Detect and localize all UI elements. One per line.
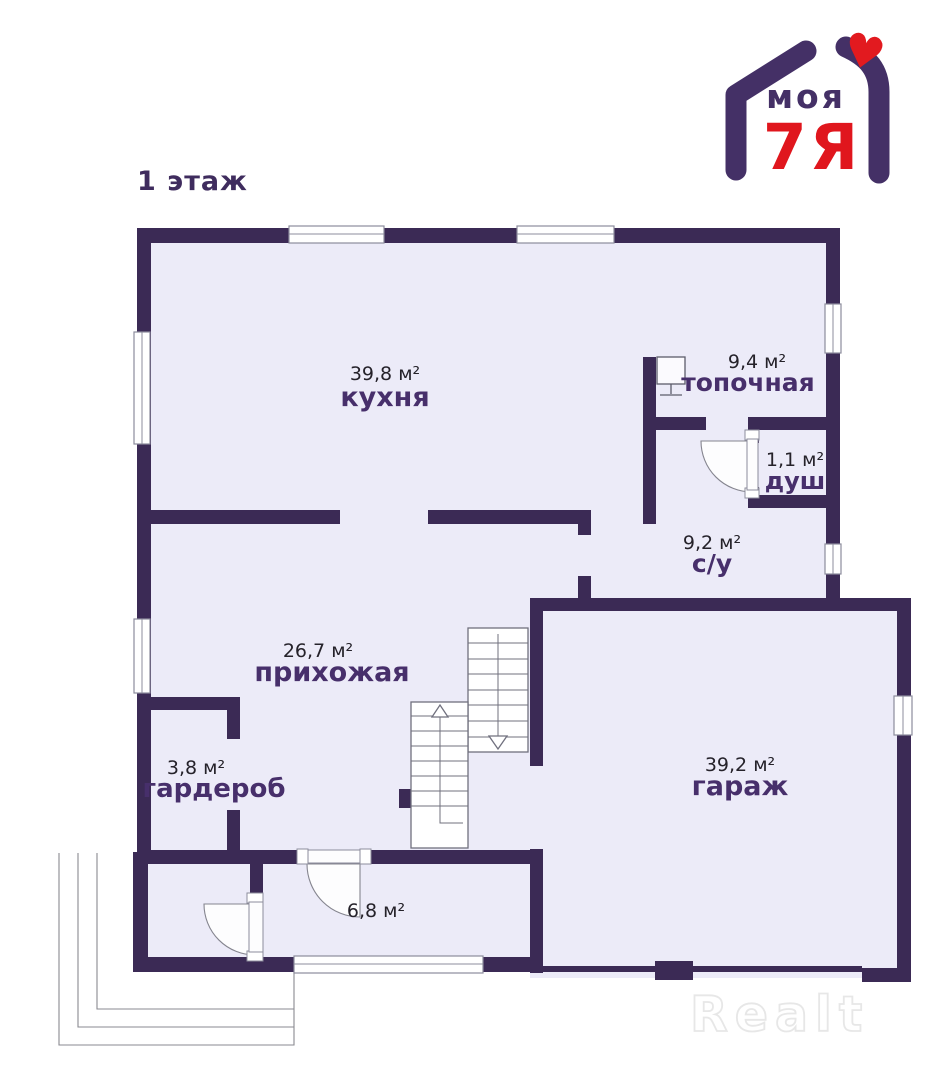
wall-hall-bottom-right bbox=[360, 850, 543, 864]
window-vestibule-bottom bbox=[294, 956, 483, 973]
wall-stub-su-top bbox=[578, 510, 591, 535]
hallway-name-label: прихожая bbox=[254, 657, 409, 688]
wall-top bbox=[137, 228, 840, 243]
kitchen-name-label: кухня bbox=[340, 382, 429, 413]
wall-wardrobe-stub-lower bbox=[227, 810, 240, 852]
floor-title: 1 этаж bbox=[137, 166, 248, 197]
wall-shower-top bbox=[748, 417, 828, 430]
wall-left bbox=[137, 228, 151, 864]
wall-garage-bottom-corner bbox=[862, 968, 911, 982]
wall-wardrobe-top bbox=[148, 697, 240, 710]
wardrobe-name-label: гардероб bbox=[143, 774, 286, 804]
wall-kitchen-bottom-left bbox=[137, 510, 340, 524]
wall-wardrobe-stub-upper bbox=[227, 697, 240, 739]
wall-hall-bottom-left bbox=[137, 850, 307, 864]
garage-name-label: гараж bbox=[692, 771, 789, 802]
window-top-2 bbox=[517, 226, 614, 243]
floor-plan-page: 1 этаж 39,8 м² кухня 9,4 м² топочная 1,1… bbox=[0, 0, 935, 1080]
wall-shower-bottom bbox=[748, 495, 828, 508]
shower-name-label: душ bbox=[765, 467, 826, 495]
garage-gate-line bbox=[543, 966, 862, 972]
window-right-boilerroom bbox=[825, 304, 841, 353]
wall-stub-su-bottom bbox=[578, 576, 591, 600]
vestibule-area-label: 6,8 м² bbox=[347, 900, 405, 922]
boilerroom-name-label: топочная bbox=[681, 368, 814, 397]
wall-kitchen-bottom-right bbox=[428, 510, 591, 524]
window-left-2 bbox=[134, 619, 150, 693]
window-right-bathroom bbox=[825, 544, 841, 574]
floor-plan-canvas: 1 этаж 39,8 м² кухня 9,4 м² топочная 1,1… bbox=[0, 0, 935, 1080]
wall-stair-stub bbox=[399, 789, 412, 808]
brand-logo: ♥ моя 7Я bbox=[736, 21, 891, 184]
wall-vestibule-left bbox=[133, 852, 148, 972]
wall-vestibule-bottom-left bbox=[133, 957, 295, 972]
wall-boilerroom-bottom bbox=[643, 417, 706, 430]
staircase-lower-flight bbox=[411, 702, 468, 848]
wall-garage-top bbox=[530, 598, 911, 611]
logo-word-bottom: 7Я bbox=[763, 111, 861, 184]
bathroom-name-label: с/у bbox=[692, 549, 732, 578]
window-top-1 bbox=[289, 226, 384, 243]
wall-garage-right bbox=[897, 598, 911, 982]
window-garage-right bbox=[894, 696, 912, 735]
garage-gate-pillar bbox=[655, 961, 693, 980]
wall-garage-left-lower bbox=[530, 849, 543, 973]
watermark-realt: Realt bbox=[690, 986, 869, 1043]
window-left-1 bbox=[134, 332, 150, 444]
wall-garage-left-upper bbox=[530, 598, 543, 766]
staircase-upper-flight bbox=[468, 628, 528, 752]
wall-kitchen-boiler-divider bbox=[643, 357, 656, 524]
